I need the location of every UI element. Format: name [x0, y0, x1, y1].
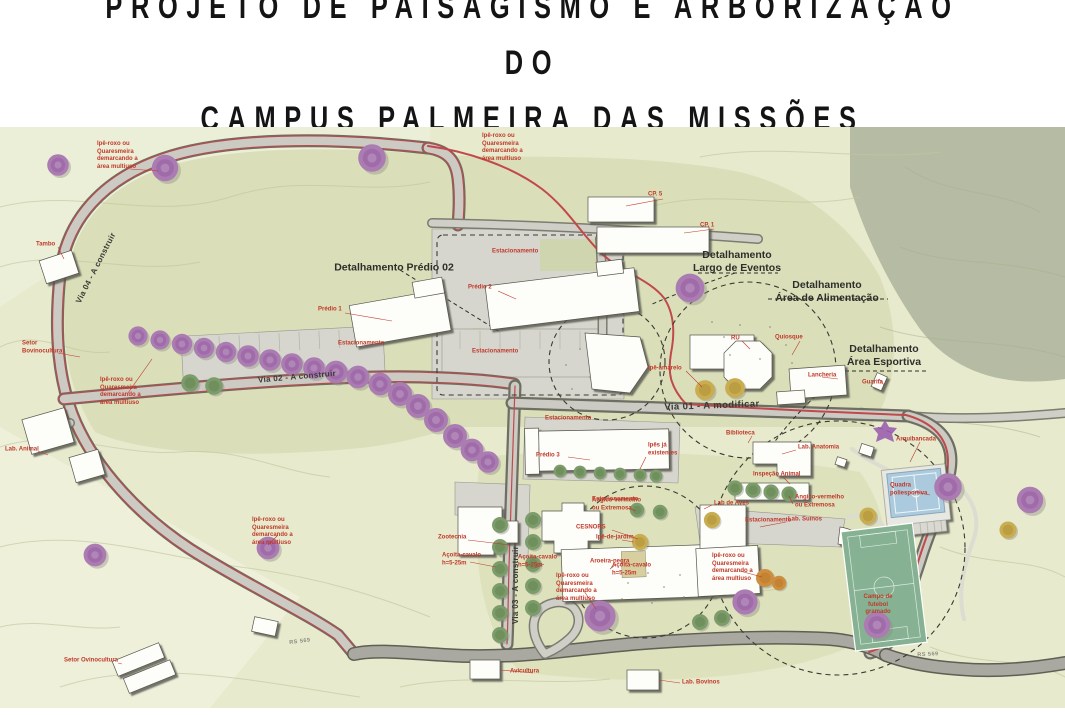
site-plan-page: PROJETO DE PAISAGISMO E ARBORIZAÇÃO DO C…	[0, 0, 1065, 715]
site-plan-map	[0, 127, 1065, 708]
map-graphic	[0, 127, 1065, 708]
page-title: PROJETO DE PAISAGISMO E ARBORIZAÇÃO DO C…	[96, 0, 969, 148]
page-header: PROJETO DE PAISAGISMO E ARBORIZAÇÃO DO C…	[0, 0, 1065, 127]
